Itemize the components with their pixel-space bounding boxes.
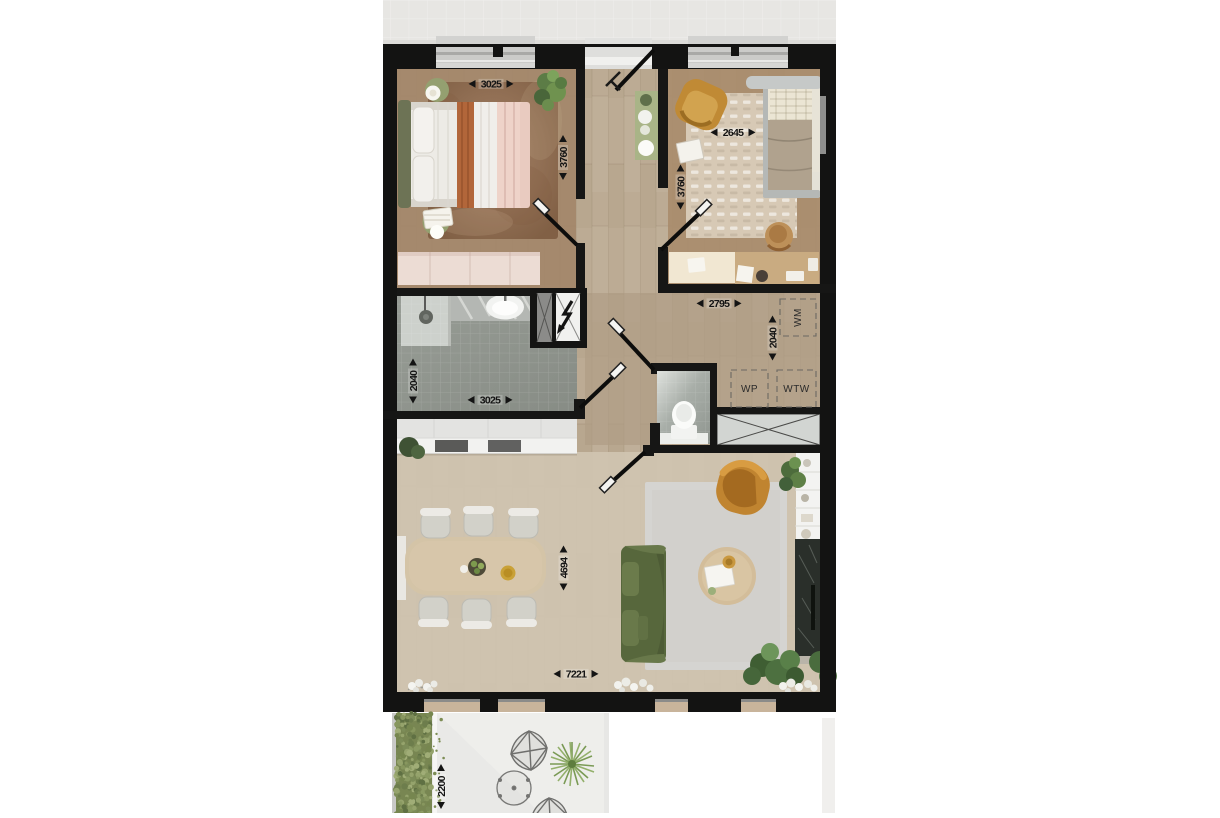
svg-text:3025: 3025 xyxy=(481,79,502,91)
svg-text:3760: 3760 xyxy=(675,176,687,197)
svg-text:2645: 2645 xyxy=(723,127,744,139)
svg-text:3025: 3025 xyxy=(480,395,501,407)
svg-text:2040: 2040 xyxy=(767,327,779,348)
svg-text:3760: 3760 xyxy=(558,146,570,167)
svg-text:7221: 7221 xyxy=(566,669,587,681)
svg-text:4694: 4694 xyxy=(558,557,570,578)
svg-text:WTW: WTW xyxy=(783,384,810,395)
svg-text:2795: 2795 xyxy=(709,298,730,310)
svg-text:2200: 2200 xyxy=(436,775,448,796)
svg-text:WP: WP xyxy=(741,384,758,395)
svg-text:WM: WM xyxy=(793,308,804,327)
svg-text:2040: 2040 xyxy=(408,370,420,391)
